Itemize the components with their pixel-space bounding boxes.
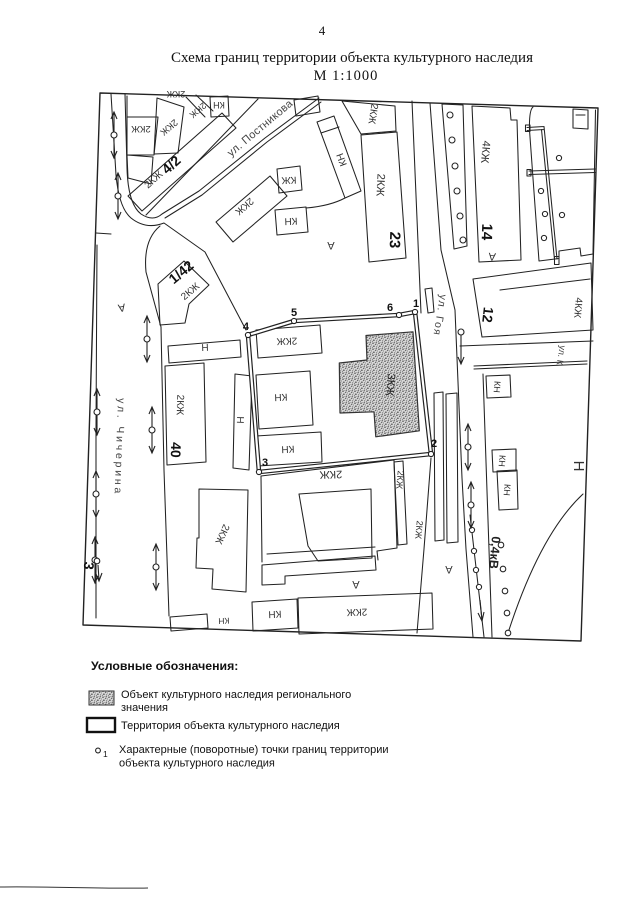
- svg-text:3КЖ: 3КЖ: [383, 373, 397, 397]
- svg-text:5: 5: [291, 307, 297, 319]
- svg-text:2КЖ: 2КЖ: [166, 89, 185, 99]
- svg-text:ул. К: ул. К: [554, 345, 567, 367]
- svg-text:4/2: 4/2: [158, 152, 183, 177]
- svg-text:23: 23: [386, 231, 404, 248]
- svg-text:12: 12: [479, 306, 497, 323]
- svg-text:40: 40: [168, 442, 185, 458]
- svg-text:КН: КН: [502, 484, 513, 497]
- svg-text:А: А: [116, 300, 126, 313]
- svg-text:2КЖ: 2КЖ: [346, 606, 368, 618]
- svg-text:2КЖ: 2КЖ: [394, 470, 406, 490]
- svg-text:2КЖ: 2КЖ: [157, 116, 179, 137]
- svg-text:2КЖ: 2КЖ: [187, 101, 208, 121]
- svg-text:2КЖ: 2КЖ: [413, 520, 425, 540]
- svg-text:0,4кВ: 0,4кВ: [486, 536, 503, 570]
- svg-text:Н: Н: [570, 461, 587, 472]
- svg-text:Н: Н: [201, 341, 209, 352]
- svg-text:КН: КН: [492, 381, 503, 394]
- svg-text:А: А: [352, 578, 360, 590]
- svg-text:Объект культурного наследия ре: Объект культурного наследия региональног…: [121, 689, 351, 701]
- svg-text:4: 4: [319, 23, 326, 38]
- svg-text:КН: КН: [268, 608, 281, 619]
- svg-text:2КЖ: 2КЖ: [174, 394, 186, 416]
- svg-text:4КЖ: 4КЖ: [571, 297, 584, 319]
- svg-text:3: 3: [262, 457, 268, 469]
- svg-text:А: А: [445, 563, 453, 575]
- svg-text:Характерные (поворотные) точки: Характерные (поворотные) точки границ те…: [119, 744, 389, 756]
- svg-text:4КЖ: 4КЖ: [478, 140, 492, 164]
- svg-text:2КЖ: 2КЖ: [131, 123, 151, 134]
- svg-text:КЖ: КЖ: [280, 174, 296, 186]
- svg-text:значения: значения: [121, 702, 168, 714]
- svg-text:Н: Н: [234, 416, 245, 424]
- svg-text:6: 6: [387, 302, 393, 314]
- svg-text:КН: КН: [284, 215, 297, 226]
- svg-text:Территория объекта культурного: Территория объекта культурного наследия: [121, 720, 340, 732]
- svg-text:2КЖ: 2КЖ: [319, 468, 342, 481]
- svg-text:4: 4: [243, 321, 250, 333]
- svg-text:Схема границ территории объект: Схема границ территории объекта культурн…: [171, 50, 533, 66]
- svg-text:КН: КН: [281, 443, 294, 454]
- svg-text:2КЖ: 2КЖ: [212, 522, 231, 546]
- svg-text:2КЖ: 2КЖ: [276, 335, 298, 347]
- svg-text:2КЖ: 2КЖ: [179, 281, 202, 303]
- svg-text:КН: КН: [497, 455, 508, 468]
- svg-text:2КЖ: 2КЖ: [143, 169, 166, 191]
- svg-text:ул. Чичерина: ул. Чичерина: [112, 398, 127, 496]
- svg-text:1: 1: [103, 749, 108, 759]
- svg-text:М 1:1000: М 1:1000: [314, 68, 379, 84]
- svg-text:КН: КН: [218, 616, 229, 626]
- svg-text:Условные обозначения:: Условные обозначения:: [91, 659, 238, 673]
- svg-text:КН: КН: [274, 391, 287, 402]
- svg-text:2: 2: [431, 438, 437, 450]
- svg-text:14: 14: [478, 223, 496, 241]
- svg-text:объекта культурного наследия: объекта культурного наследия: [119, 758, 275, 770]
- svg-text:3: 3: [81, 561, 98, 571]
- svg-text:А: А: [327, 239, 335, 251]
- svg-text:1: 1: [413, 298, 419, 310]
- svg-text:2КЖ: 2КЖ: [365, 103, 379, 126]
- svg-text:А: А: [487, 250, 496, 263]
- svg-text:КН: КН: [213, 100, 225, 110]
- svg-text:2КЖ: 2КЖ: [373, 173, 386, 196]
